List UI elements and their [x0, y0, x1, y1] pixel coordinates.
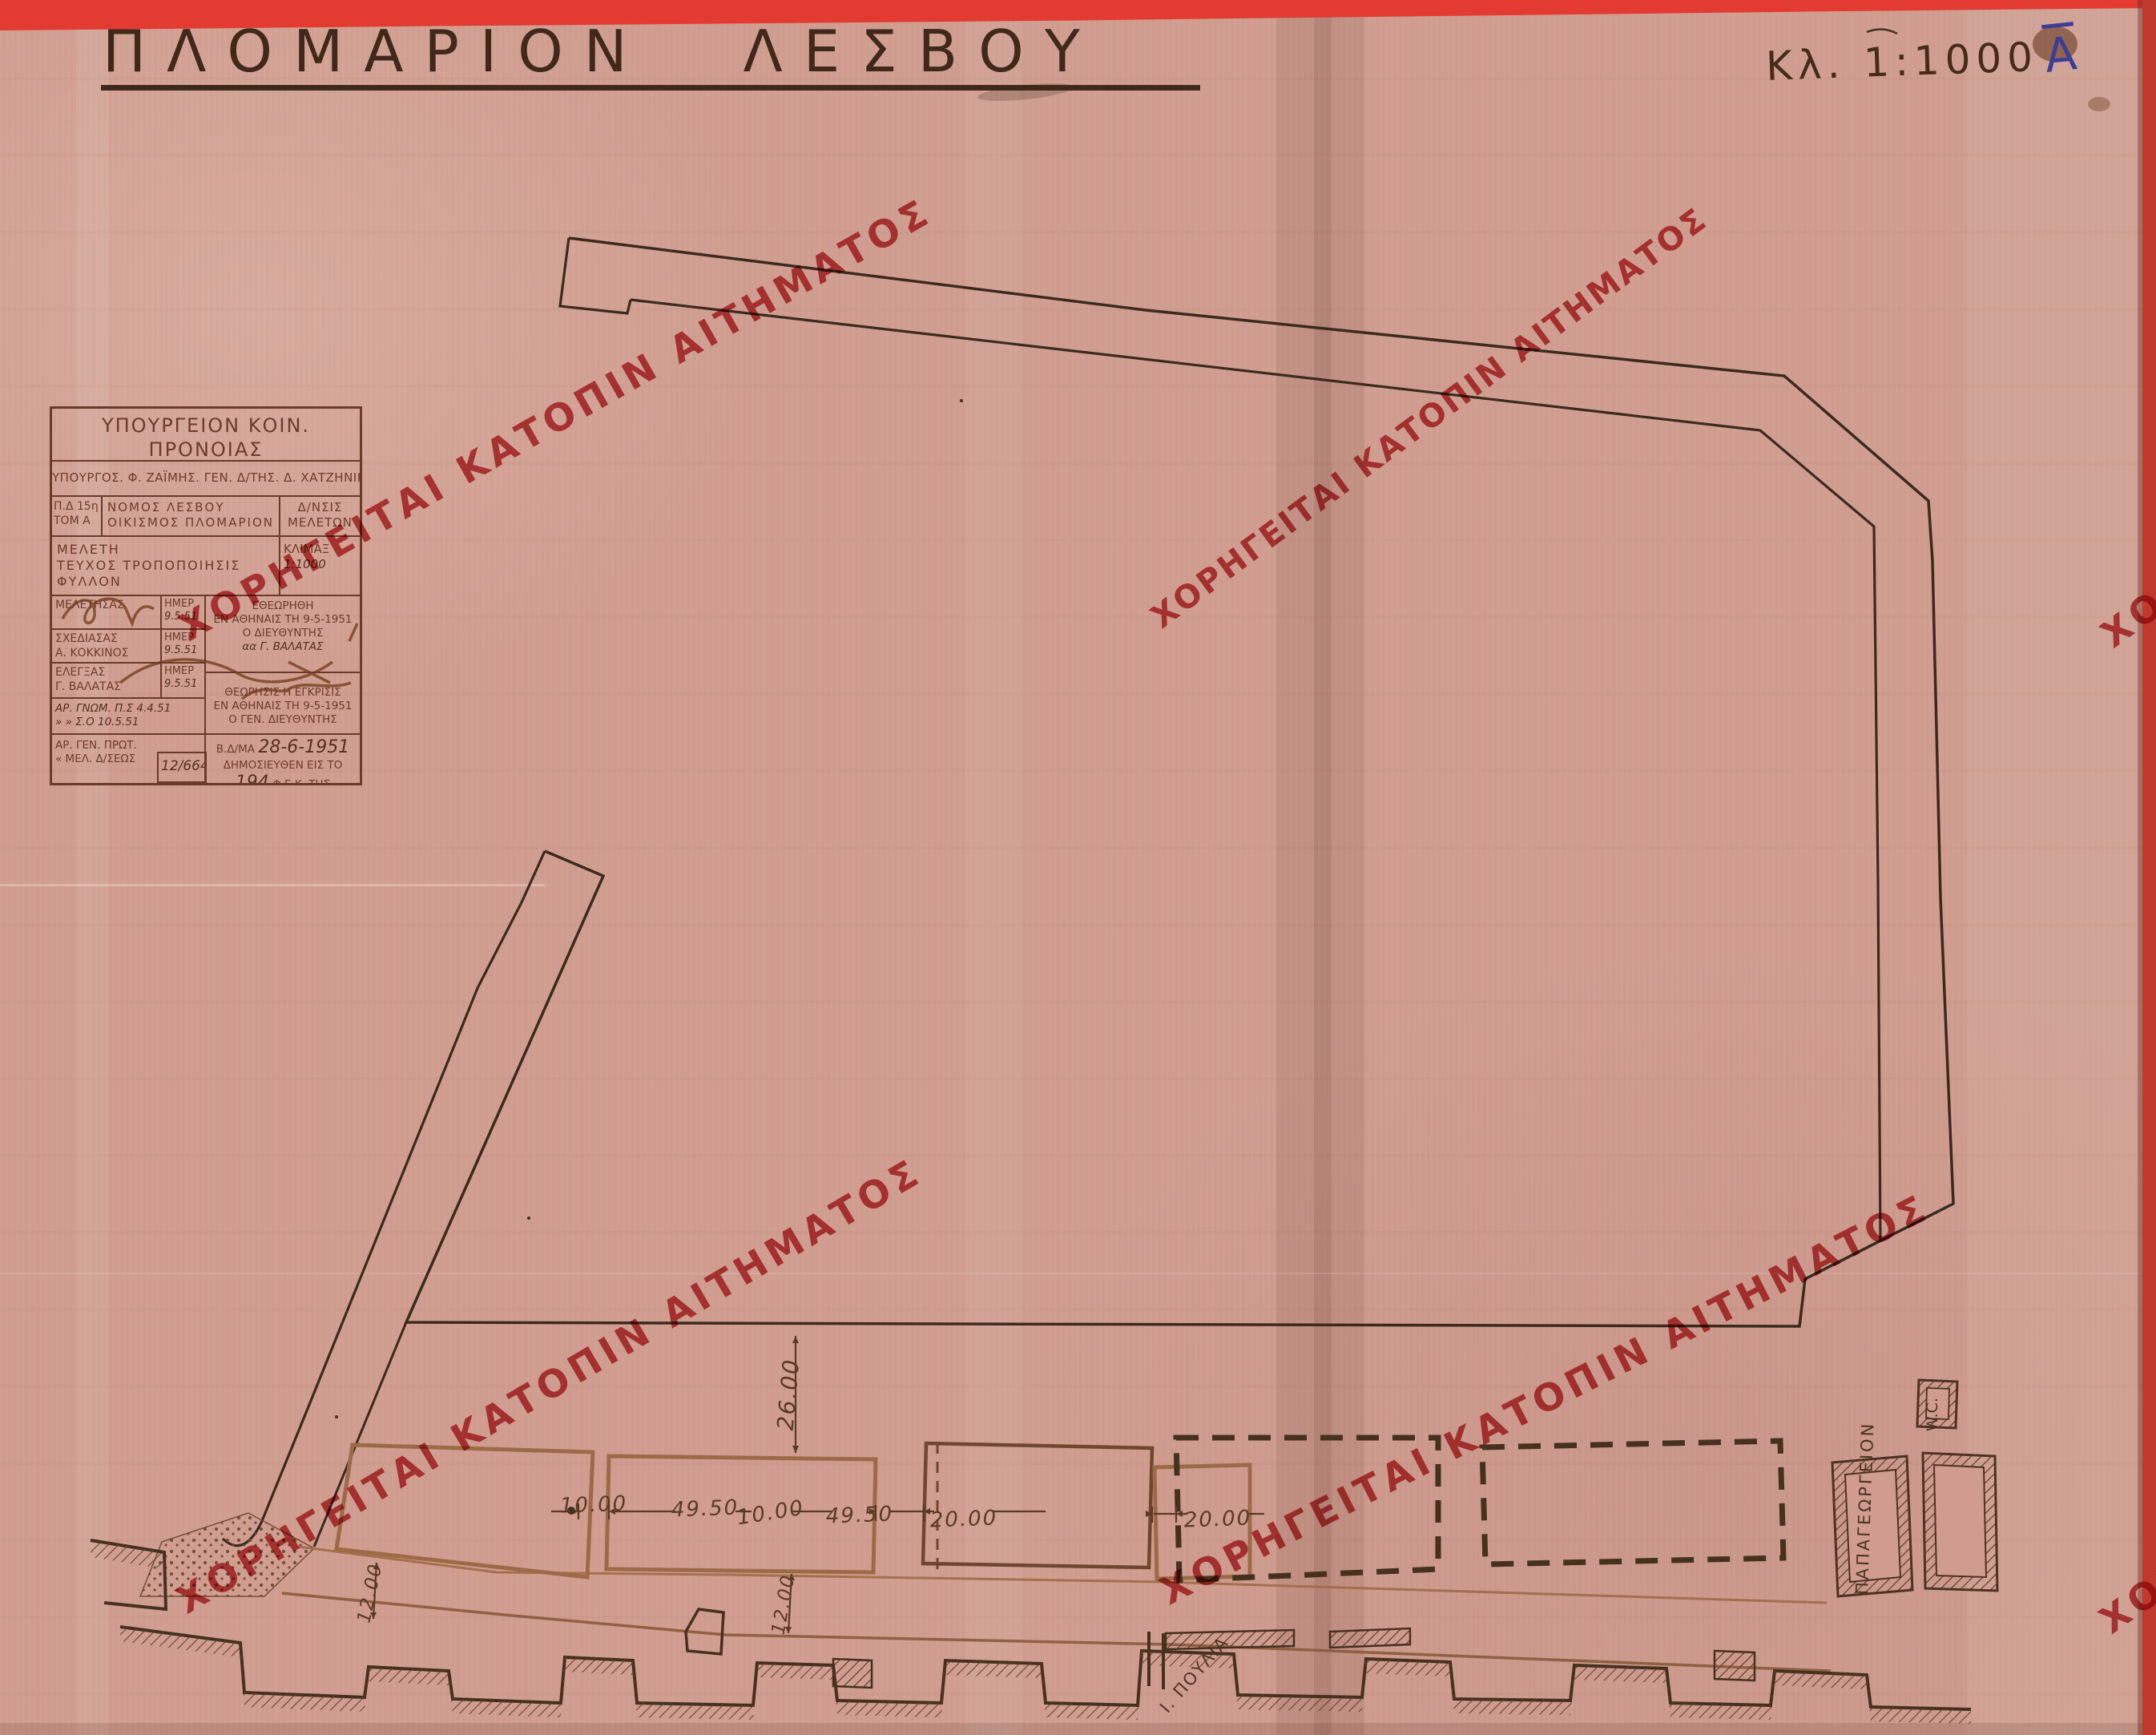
shore-wall-left-hatch — [91, 1540, 164, 1569]
dim-label-10a: 10.00 — [559, 1492, 627, 1519]
study-line1: ΜΕΛΕΤΗ — [57, 542, 274, 558]
review-line4: αα Γ. ΒΑΛΑΤΑΣ — [208, 640, 358, 654]
dim-label-20a: 20.00 — [929, 1507, 997, 1533]
plan-linework — [0, 0, 2156, 1735]
decree-date: 28-6-1951 — [258, 737, 349, 757]
title-block-header: ΥΠΟΥΡΓΕΙΟΝ ΚΟΙΝ. ΠΡΟΝΟΙΑΣ ΓΕΝΙΚΗ Δ/ΝΣΙΣ … — [52, 409, 360, 460]
title-underline — [101, 85, 1200, 91]
protocol-line1: ΑΡ. ΓΕΝ. ΠΡΩΤ. — [55, 739, 201, 753]
approval-line1: ΘΕΩΡΗΣΙΣ Η ΕΓΚΡΙΣΙΣ — [208, 686, 358, 700]
ref-cell: Π.Δ 15η ΤΟΜ Α — [52, 495, 101, 535]
staff-elegxas: ΕΛΕΓΞΑΣ Γ. ΒΑΛΑΤΑΣ — [52, 662, 160, 697]
sheet-letter-annotation: A — [2042, 26, 2080, 83]
protocol-number-box: 12/664 — [157, 752, 207, 783]
wc-label: W.C. — [1924, 1398, 1941, 1431]
staff-role-melethsas: ΜΕΛΕΤΗΣΑΣ — [52, 595, 160, 628]
dim-label-4950a: 49.50 — [671, 1496, 739, 1523]
region-line1: ΝΟΜΟΣ ΛΕΣΒΟΥ — [107, 500, 274, 515]
plot-inner-boundary — [631, 300, 1880, 1241]
fek-number: 194 — [236, 773, 269, 783]
date-label: ΗΜΕΡ — [164, 665, 202, 678]
approval-cell: ΘΕΩΡΗΣΙΣ Η ΕΓΚΡΙΣΙΣ ΕΝ ΑΘΗΝΑΙΣ ΤΗ 9-5-19… — [204, 672, 360, 733]
decree-line2: ΔΗΜΟΣΙΕΥΘΕΝ ΕΙΣ ΤΟ — [208, 759, 358, 773]
scale-note: Κλ. 1:1000 — [1765, 34, 2039, 90]
proposed-block-e — [1482, 1441, 1783, 1564]
ref-line2: ΤΟΜ Α — [54, 514, 99, 529]
quay-line-lower — [282, 1593, 1831, 1671]
plot-outer-boundary — [406, 238, 1953, 1326]
decree-prefix: Β.Δ/ΜΑ — [216, 743, 255, 756]
approval-line2: ΕΝ ΑΘΗΝΑΙΣ ΤΗ 9-5-1951 — [208, 700, 358, 713]
opinions-line1: ΑΡ. ΓΝΩΜ. Π.Σ 4.4.51 — [55, 702, 201, 716]
scan-specks — [335, 26, 2110, 1515]
region-cell: ΝΟΜΟΣ ΛΕΣΒΟΥ ΟΙΚΙΣΜΟΣ ΠΛΟΜΑΡΙΟΝ — [101, 495, 279, 535]
ref-line1: Π.Δ 15η — [54, 500, 99, 514]
staff-role: ΣΧΕΔΙΑΣΑΣ — [55, 632, 157, 647]
staff-name: Α. ΚΟΚΚΙΝΟΣ — [55, 647, 157, 661]
opinions-cell: ΑΡ. ΓΝΩΜ. Π.Σ 4.4.51 » » Σ.Ο 10.5.51 — [52, 697, 204, 733]
staff-date-elegxas: ΗΜΕΡ 9.5.51 — [160, 662, 204, 697]
decree-line1: Β.Δ/ΜΑ 28-6-1951 — [208, 736, 358, 759]
decree-cell: Β.Δ/ΜΑ 28-6-1951 ΔΗΜΟΣΙΕΥΘΕΝ ΕΙΣ ΤΟ 194 … — [204, 733, 360, 783]
staff-sxediasas: ΣΧΕΔΙΑΣΑΣ Α. ΚΟΚΚΙΝΟΣ — [52, 628, 160, 662]
scan-edge-right-shadow — [2138, 0, 2142, 1735]
fek-suffix: Φ.Ε.Κ. ΤΗΣ — [272, 778, 330, 783]
dimension-lines — [370, 1336, 1264, 1633]
date-value: 9.5.51 — [164, 678, 202, 691]
corridor-end-cap — [560, 238, 631, 313]
region-line2: ΟΙΚΙΣΜΟΣ ΠΛΟΜΑΡΙΟΝ — [107, 515, 274, 531]
decree-line3: 194 Φ.Ε.Κ. ΤΗΣ — [208, 772, 358, 783]
staff-role: ΕΛΕΓΞΑΣ — [55, 666, 157, 680]
approval-line3: Ο ΓΕΝ. ΔΙΕΥΘΥΝΤΗΣ — [208, 713, 358, 727]
page-title: ΠΛΟΜΑΡΙΟΝ ΛΕΣΒΟΥ — [103, 18, 1208, 85]
officials-row: ΥΠΟΥΡΓΟΣ. Φ. ΖΑΪΜΗΣ. ΓΕΝ. Δ/ΤΗΣ. Δ. ΧΑΤΖ… — [52, 460, 360, 495]
building-unlabeled — [1923, 1453, 1997, 1591]
opinions-line2: » » Σ.Ο 10.5.51 — [55, 716, 201, 729]
dim-label-4950b: 49.50 — [825, 1503, 893, 1529]
scan-edge-right-strip — [2142, 0, 2156, 1735]
plot-rect-c — [923, 1443, 1152, 1568]
scanned-town-plan-page: ΠΛΟΜΑΡΙΟΝ ΛΕΣΒΟΥ Κλ. 1:1000 A ΥΠΟΥΡΓΕΙΟΝ… — [0, 0, 2156, 1735]
staff-name: Γ. ΒΑΛΑΤΑΣ — [55, 680, 157, 695]
ministry-name: ΥΠΟΥΡΓΕΙΟΝ ΚΟΙΝ. ΠΡΟΝΟΙΑΣ — [52, 414, 360, 460]
quay-line-upper — [298, 1547, 1827, 1603]
